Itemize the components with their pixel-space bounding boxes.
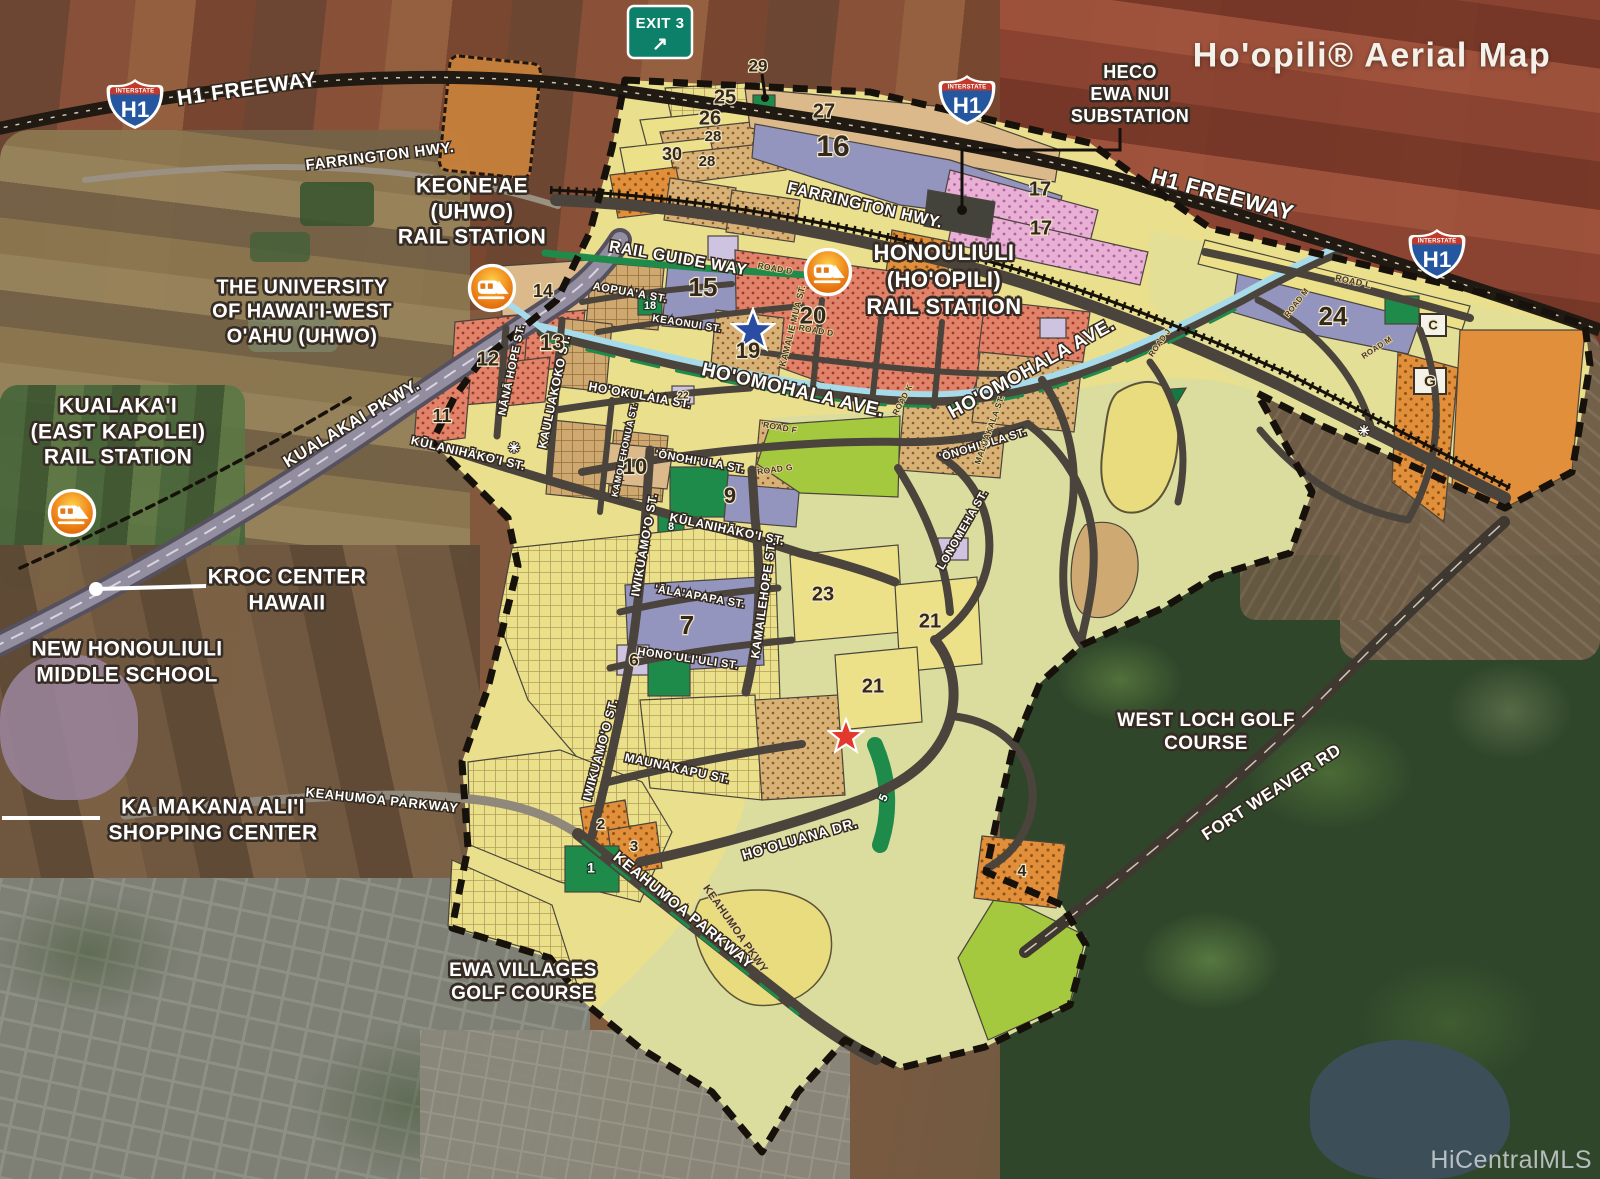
new-honouliuli-middle-school-label: NEW HONOULIULI MIDDLE SCHOOL	[31, 636, 222, 687]
university-of-hawaii-west-oahu-label: THE UNIVERSITY OF HAWAI'I-WEST O'AHU (UH…	[212, 275, 392, 348]
landmark-callouts: KEONE'AE (UHWO) RAIL STATIONTHE UNIVERSI…	[0, 0, 1600, 1179]
ka-makana-alii-shopping-center-label: KA MAKANA ALI'I SHOPPING CENTER	[108, 794, 317, 845]
page-title: Ho'opili® Aerial Map	[1193, 37, 1551, 76]
aerial-map-canvas: INTERSTATE H1	[0, 0, 1600, 1179]
kualakai-rail-station-label: KUALAKA'I (EAST KAPOLEI) RAIL STATION	[31, 394, 206, 471]
watermark: HiCentralMLS	[1430, 1146, 1592, 1175]
honouliuli-hoopili-rail-station-label: HONOULIULI (HO'OPILI) RAIL STATION	[866, 240, 1021, 320]
keoneae-rail-station-label: KEONE'AE (UHWO) RAIL STATION	[398, 174, 546, 251]
ewa-villages-golf-course-label: EWA VILLAGES GOLF COURSE	[449, 959, 597, 1005]
heco-ewa-nui-substation-label: HECO EWA NUI SUBSTATION	[1071, 62, 1189, 128]
west-loch-golf-course-label: WEST LOCH GOLF COURSE	[1117, 709, 1295, 755]
kroc-center-hawaii-label: KROC CENTER HAWAII	[208, 564, 366, 615]
